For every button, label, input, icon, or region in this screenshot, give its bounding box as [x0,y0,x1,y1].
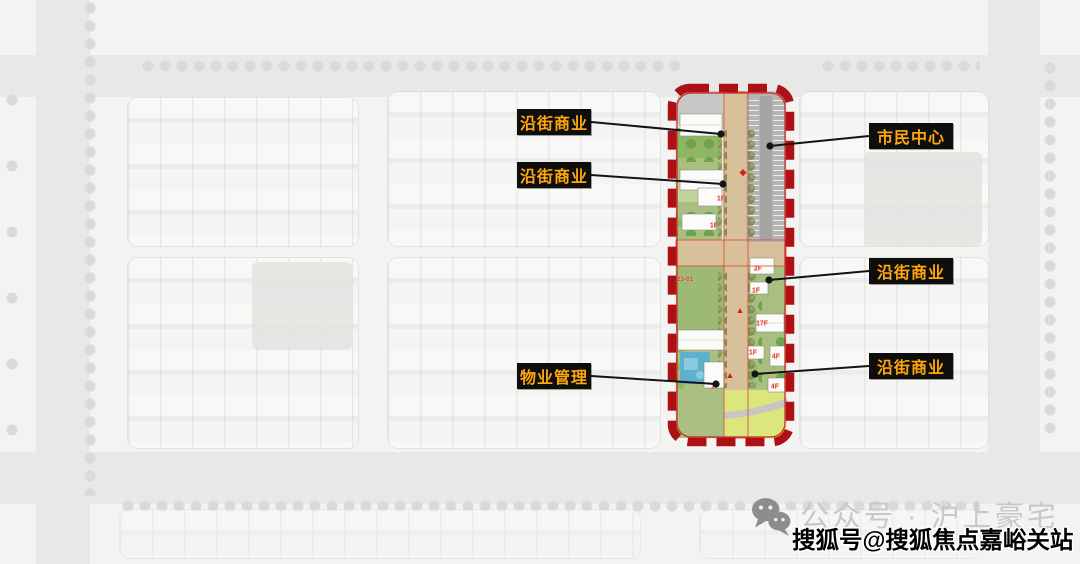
parking-lane [760,96,772,240]
callout-label: 沿街商业 [517,162,591,188]
callout-label: 沿街商业 [517,109,591,135]
background-road-bottom [0,452,1080,504]
residential-block [128,98,358,246]
residential-block [700,510,980,558]
callout-label: 市民中心 [869,123,953,149]
pool-detail [684,358,698,370]
screenshot-root: 1F1F2F1F17F1F4F4F1F23-01 沿街商业沿街商业市民中心沿街商… [0,0,1080,564]
green-lawn [676,266,724,330]
callout-label: 沿街商业 [869,353,953,379]
tree-row-top [140,58,680,74]
callout-label: 物业管理 [517,363,591,389]
background-facility-block [252,262,352,350]
site-plan [668,84,794,446]
residential-block [388,258,660,448]
street-trees [748,130,757,240]
tree-row-top-right [820,58,980,74]
callout-label: 沿街商业 [869,258,953,284]
tree-column-left [82,0,98,496]
tree-column-far-left [4,92,20,472]
pool-detail [696,371,704,379]
background-civic-parcel [864,152,982,246]
background-road-right [988,0,1040,470]
tree-column-right [1042,60,1057,440]
residential-block [120,510,640,558]
